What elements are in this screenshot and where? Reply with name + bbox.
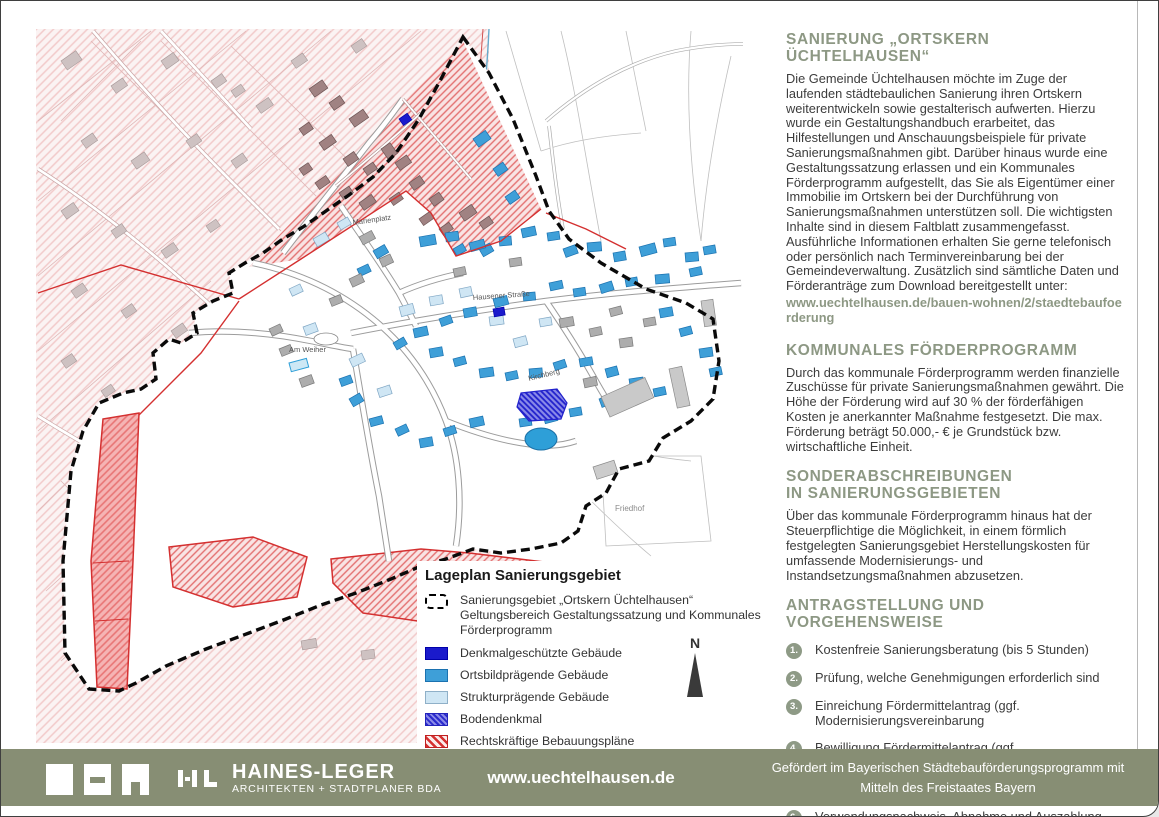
section-sonderabschreibungen-body: Über das kommunale Förderprogramm hinaus… bbox=[786, 509, 1124, 583]
logo-square-icon bbox=[46, 764, 73, 795]
section-sanierung-heading: SANIERUNG „ORTSKERN ÜCHTELHAUSEN“ bbox=[786, 31, 1124, 65]
website-url[interactable]: www.uechtelhausen.de bbox=[441, 768, 721, 788]
step-2: 2. Prüfung, welche Genehmigungen erforde… bbox=[786, 671, 1124, 687]
section-foerderprogramm-body: Durch das kommunale Förderprogramm werde… bbox=[786, 366, 1124, 455]
text-column: SANIERUNG „ORTSKERN ÜCHTELHAUSEN“ Die Ge… bbox=[786, 31, 1124, 817]
step-1: 1. Kostenfreie Sanierungsberatung (bis 5… bbox=[786, 643, 1124, 659]
legend-item-bodendenkmal: Bodendenkmal bbox=[425, 712, 771, 727]
legend-swatch-ortsbild bbox=[425, 669, 448, 682]
legend-item-struktur: Strukturprägende Gebäude bbox=[425, 690, 771, 705]
logo-square-slot-icon bbox=[84, 764, 111, 795]
brand-subtitle: ARCHITEKTEN + STADTPLANER BDA bbox=[232, 783, 441, 796]
section-foerderprogramm-heading: KOMMUNALES FÖRDERPROGRAMM bbox=[786, 342, 1124, 359]
step-2-number: 2. bbox=[786, 671, 802, 687]
page-fold-line bbox=[1137, 1, 1138, 749]
legend-item-ortsbild: Ortsbildprägende Gebäude bbox=[425, 668, 771, 683]
download-link[interactable]: www.uechtelhausen.de/bauen-wohnen/2/stae… bbox=[786, 296, 1124, 326]
legend-swatch-boundary bbox=[425, 594, 448, 609]
section-sonderabschreibungen-heading: SONDERABSCHREIBUNGEN IN SANIERUNGSGEBIET… bbox=[786, 468, 1124, 502]
area-label-friedhof: Friedhof bbox=[615, 504, 645, 513]
legend-item-denkmal: Denkmalgeschützte Gebäude bbox=[425, 646, 771, 661]
haines-leger-logo: HAINES-LEGER ARCHITEKTEN + STADTPLANER B… bbox=[46, 762, 441, 796]
flyer-page: Marienplatz Hausener Straße Kirchberg Am… bbox=[0, 0, 1159, 817]
legend-swatch-denkmal bbox=[425, 647, 448, 660]
logo-square-door-icon bbox=[122, 764, 149, 795]
step-6-number: 6. bbox=[786, 810, 802, 817]
north-needle-icon bbox=[687, 653, 703, 697]
north-arrow: N bbox=[685, 635, 705, 697]
hl-monogram-icon bbox=[178, 770, 218, 788]
section-sanierung-body: Die Gemeinde Üchtelhausen möchte im Zuge… bbox=[786, 72, 1124, 294]
step-3: 3. Einreichung Fördermittelantrag (ggf. … bbox=[786, 699, 1124, 728]
legend-item-sanierungsgebiet: Sanierungsgebiet „Ortskern Üchtelhausen“… bbox=[425, 593, 771, 639]
legend-swatch-struktur bbox=[425, 691, 448, 704]
step-6: 6. Verwendungsnachweis, Abnahme und Ausz… bbox=[786, 810, 1124, 817]
map-legend: Lageplan Sanierungsgebiet Sanierungsgebi… bbox=[417, 561, 779, 765]
brand-text: HAINES-LEGER ARCHITEKTEN + STADTPLANER B… bbox=[232, 762, 441, 796]
step-1-number: 1. bbox=[786, 643, 802, 659]
brand-name: HAINES-LEGER bbox=[232, 762, 441, 783]
section-antragstellung-heading: ANTRAGSTELLUNG UND VORGEHENSWEISE bbox=[786, 597, 1124, 631]
street-label-am-weiher: Am Weiher bbox=[289, 345, 326, 354]
step-3-number: 3. bbox=[786, 699, 802, 715]
footer-band: HAINES-LEGER ARCHITEKTEN + STADTPLANER B… bbox=[1, 749, 1158, 806]
legend-swatch-bebauungsplaene bbox=[425, 735, 448, 748]
funding-note: Gefördert im Bayerischen Städtebauförder… bbox=[752, 758, 1144, 798]
legend-title: Lageplan Sanierungsgebiet bbox=[425, 567, 771, 584]
north-label: N bbox=[685, 635, 705, 651]
legend-swatch-bodendenkmal bbox=[425, 713, 448, 726]
legend-item-bebauungsplaene: Rechtskräftige Bebauungspläne bbox=[425, 734, 771, 749]
